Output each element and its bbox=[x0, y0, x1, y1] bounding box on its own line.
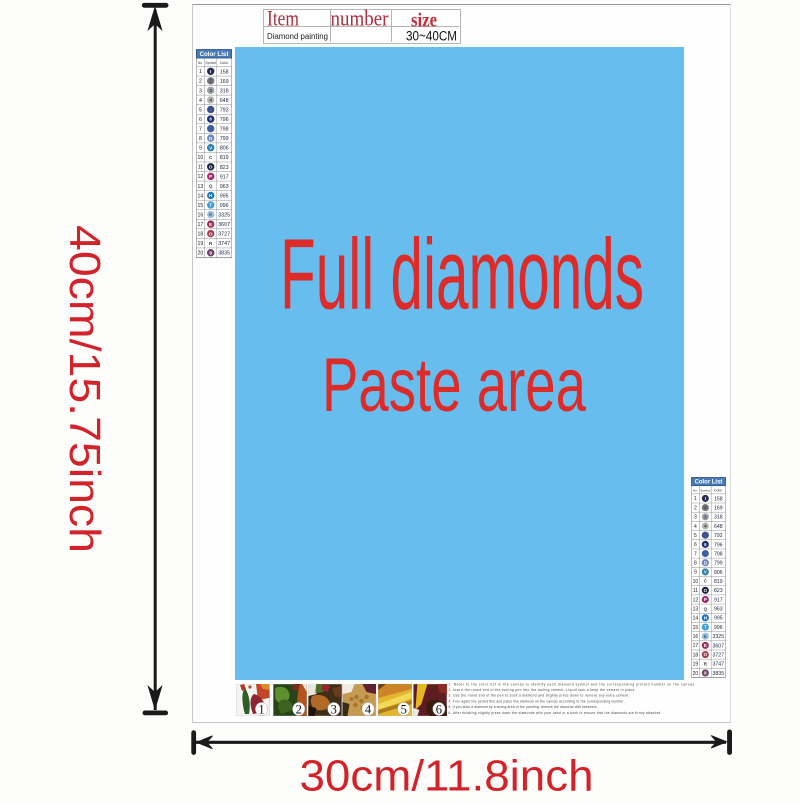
svg-text:5. If you stick a diamond by a: 5. If you stick a diamond by a wrong are… bbox=[449, 705, 598, 709]
svg-text:2. Insert the round end of the: 2. Insert the round end of the tooling p… bbox=[449, 688, 636, 692]
svg-text:1. Refer to the color list in: 1. Refer to the color list in the canvas… bbox=[449, 682, 696, 686]
svg-text:3. Use the round end of the pe: 3. Use the round end of the pen to stick… bbox=[449, 694, 630, 698]
svg-text:4: 4 bbox=[365, 702, 372, 716]
svg-text:1: 1 bbox=[258, 702, 264, 716]
svg-text:30cm/11.8inch: 30cm/11.8inch bbox=[300, 752, 594, 801]
svg-text:6. After finishing slightly pr: 6. After finishing slightly press down t… bbox=[449, 711, 662, 715]
svg-text:3: 3 bbox=[331, 702, 337, 716]
svg-text:6: 6 bbox=[436, 702, 442, 716]
svg-text:40cm/15.75inch: 40cm/15.75inch bbox=[60, 225, 109, 553]
svg-text:4. Turn again the period this: 4. Turn again the period this and place … bbox=[449, 699, 625, 703]
svg-text:5: 5 bbox=[401, 702, 407, 716]
svg-text:2: 2 bbox=[296, 702, 302, 716]
